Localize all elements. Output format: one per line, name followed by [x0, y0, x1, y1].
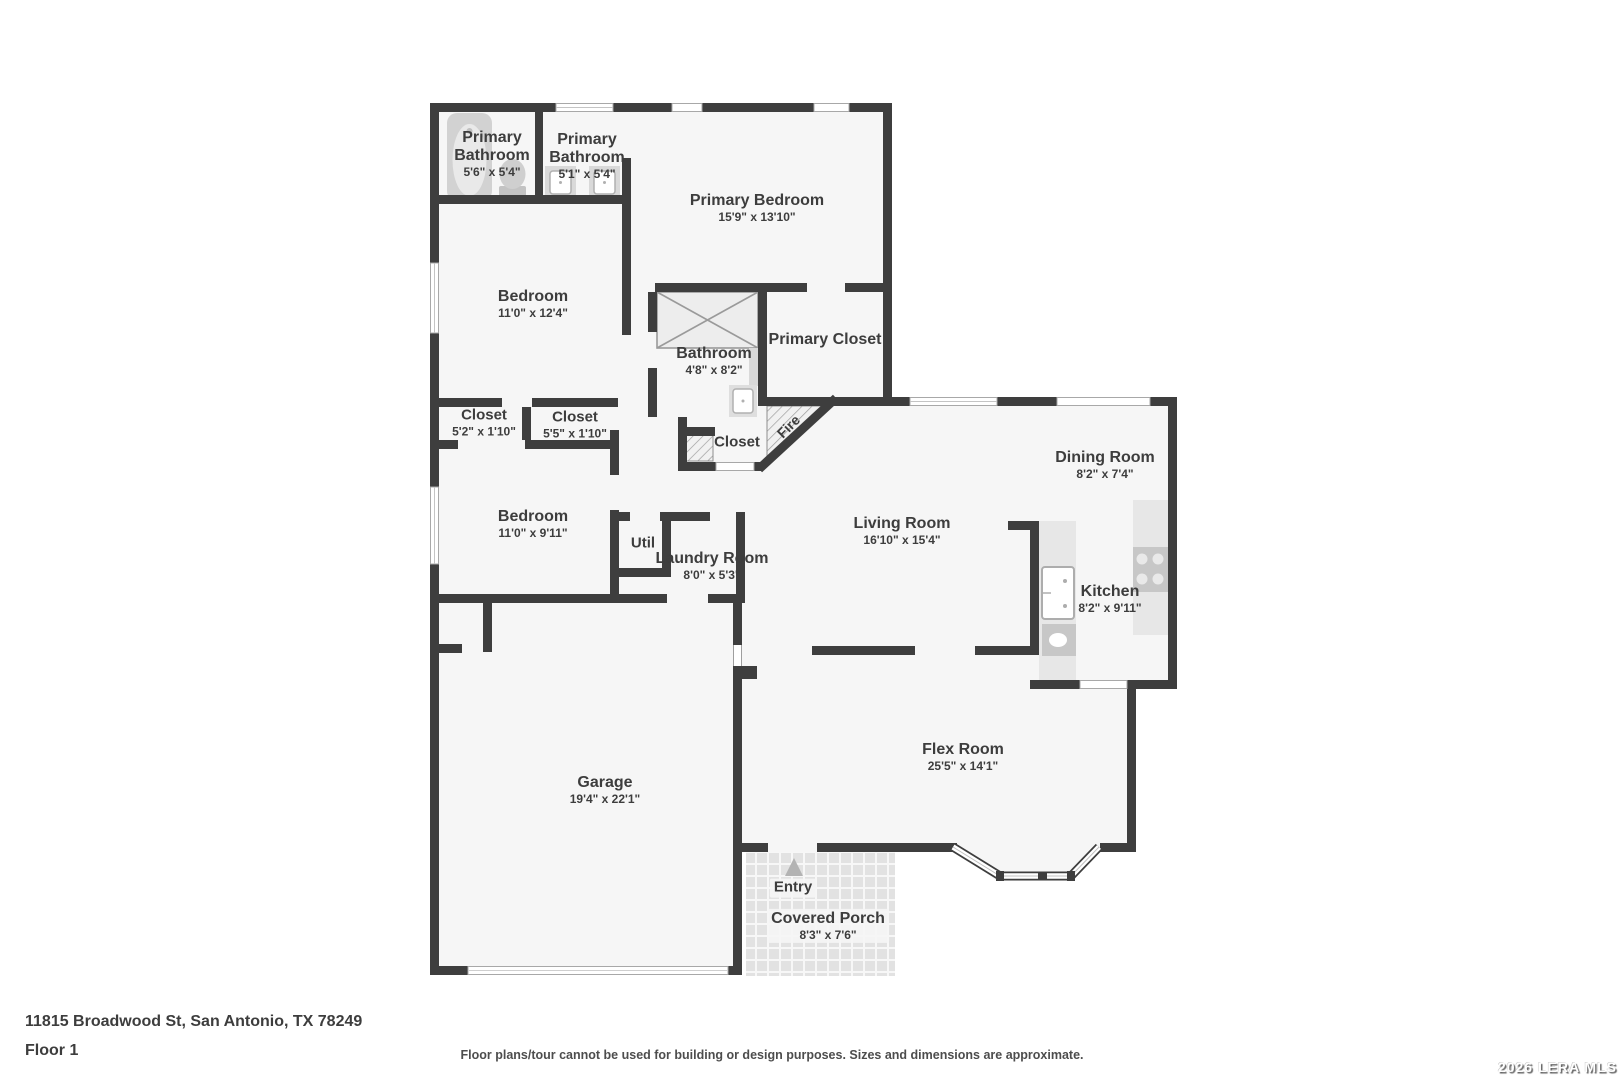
- room-name: Laundry Room: [656, 550, 769, 568]
- room-dims: 8'2" x 7'4": [1055, 468, 1155, 481]
- room-name: Closet: [714, 435, 760, 452]
- room-dims: 8'3" x 7'6": [771, 929, 885, 942]
- room-label-flex: Flex Room 25'5" x 14'1": [922, 741, 1004, 773]
- room-label-primary-closet: Primary Closet: [769, 331, 882, 349]
- room-dims: 15'9" x 13'10": [690, 211, 824, 224]
- room-label-primary-bedroom: Primary Bedroom 15'9" x 13'10": [690, 192, 824, 224]
- window-dining-1: [910, 398, 997, 406]
- room-dims: 8'0" x 5'3": [656, 569, 769, 582]
- room-dims: 11'0" x 9'11": [498, 527, 568, 540]
- room-dims: 5'6" x 5'4": [440, 166, 544, 179]
- window-kitchen: [1080, 681, 1127, 689]
- room-dims: 8'2" x 9'11": [1078, 602, 1141, 615]
- room-label-closet-small: Closet: [714, 435, 760, 452]
- room-name: Living Room: [854, 515, 951, 533]
- room-label-bathroom: Bathroom 4'8" x 8'2": [676, 345, 752, 377]
- window-left-1: [431, 263, 439, 333]
- shower: [657, 292, 758, 348]
- room-name: Primary Bathroom: [535, 131, 639, 167]
- room-label-bedroom-2: Bedroom 11'0" x 9'11": [498, 508, 568, 540]
- room-label-closet-2: Closet 5'5" x 1'10": [543, 409, 607, 440]
- window-top-1: [556, 104, 613, 112]
- room-dims: 19'4" x 22'1": [570, 793, 640, 806]
- room-dims: 5'1" x 5'4": [535, 168, 639, 181]
- room-name: Bathroom: [676, 345, 752, 363]
- address-text: 11815 Broadwood St, San Antonio, TX 7824…: [25, 1013, 362, 1031]
- room-name: Closet: [452, 407, 516, 424]
- room-label-bedroom-1: Bedroom 11'0" x 12'4": [498, 288, 568, 320]
- floorplan-page: Primary Bathroom 5'6" x 5'4" Primary Bat…: [0, 0, 1620, 1080]
- floor-label: Floor 1: [25, 1042, 78, 1060]
- room-label-primary-bathroom-2: Primary Bathroom 5'1" x 5'4": [535, 131, 639, 181]
- room-label-util: Util: [631, 536, 655, 553]
- room-name: Primary Bathroom: [440, 129, 544, 165]
- room-name: Primary Closet: [769, 331, 882, 349]
- room-name: Flex Room: [922, 741, 1004, 759]
- room-name: Util: [631, 536, 655, 553]
- disclaimer-text: Floor plans/tour cannot be used for buil…: [460, 1048, 1083, 1062]
- room-label-garage: Garage 19'4" x 22'1": [570, 774, 640, 806]
- window-dining-2: [1057, 398, 1150, 406]
- garage-door: [468, 967, 728, 975]
- window-top-2: [672, 104, 702, 112]
- window-closet: [716, 463, 754, 471]
- room-name: Covered Porch: [771, 910, 885, 928]
- room-label-entry: Entry: [770, 879, 816, 898]
- room-label-porch: Covered Porch 8'3" x 7'6": [767, 909, 889, 943]
- room-name: Primary Bedroom: [690, 192, 824, 210]
- kitchen-counter-west: [1039, 521, 1076, 683]
- window-top-3: [814, 104, 849, 112]
- room-dims: 16'10" x 15'4": [854, 534, 951, 547]
- room-label-laundry: Laundry Room 8'0" x 5'3": [656, 550, 769, 582]
- garage-side-door: [734, 645, 742, 666]
- room-name: Entry: [774, 880, 812, 897]
- room-dims: 5'2" x 1'10": [452, 425, 516, 438]
- window-left-2: [431, 487, 439, 564]
- room-dims: 11'0" x 12'4": [498, 307, 568, 320]
- room-name: Closet: [543, 409, 607, 426]
- room-dims: 5'5" x 1'10": [543, 427, 607, 440]
- room-dims: 25'5" x 14'1": [922, 760, 1004, 773]
- room-label-primary-bathroom-1: Primary Bathroom 5'6" x 5'4": [440, 129, 544, 179]
- room-dims: 4'8" x 8'2": [676, 364, 752, 377]
- room-label-closet-1: Closet 5'2" x 1'10": [452, 407, 516, 438]
- room-label-kitchen: Kitchen 8'2" x 9'11": [1078, 583, 1141, 615]
- room-label-dining: Dining Room 8'2" x 7'4": [1055, 449, 1155, 481]
- mls-watermark: 2026 LERA MLS: [1498, 1059, 1617, 1075]
- room-name: Bedroom: [498, 508, 568, 526]
- room-name: Kitchen: [1078, 583, 1141, 601]
- room-label-living: Living Room 16'10" x 15'4": [854, 515, 951, 547]
- room-name: Garage: [570, 774, 640, 792]
- room-name: Dining Room: [1055, 449, 1155, 467]
- room-name: Bedroom: [498, 288, 568, 306]
